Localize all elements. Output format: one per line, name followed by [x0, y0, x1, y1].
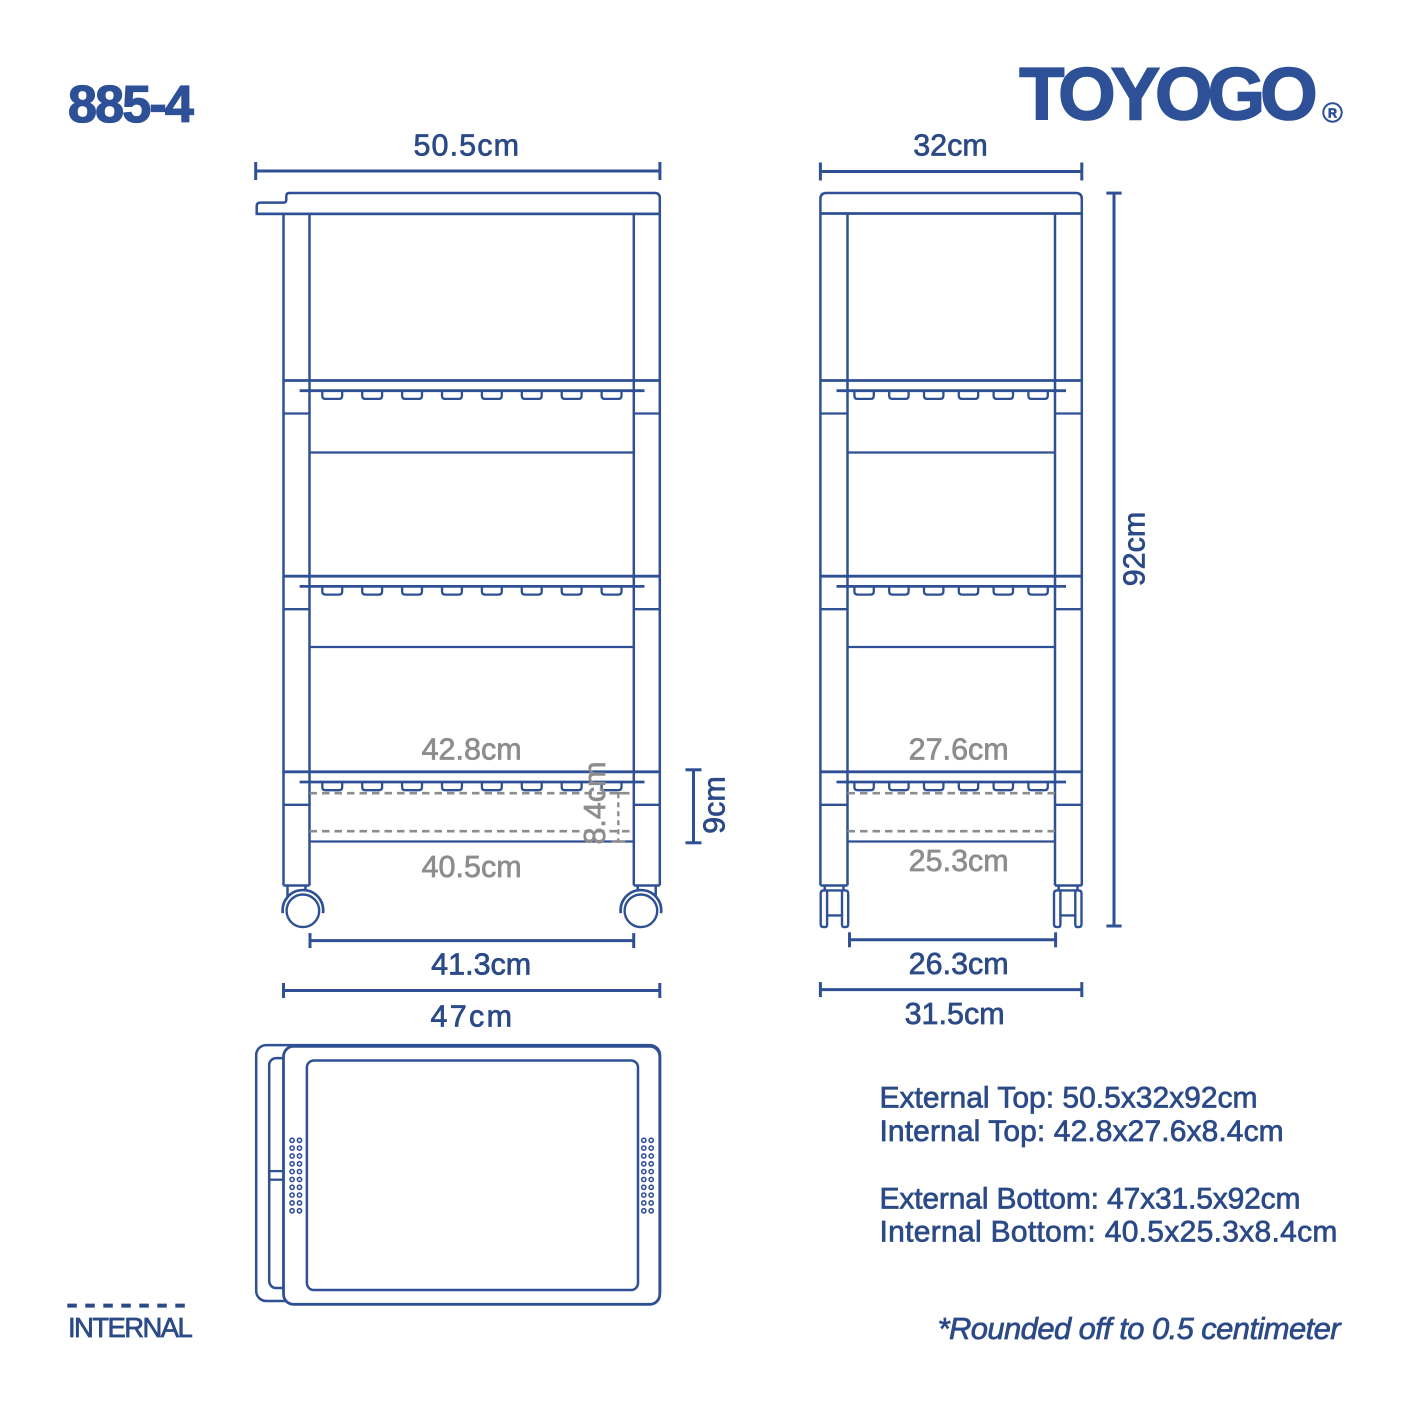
svg-text:External Top: 50.5x32x92cm: External Top: 50.5x32x92cm: [880, 1081, 1258, 1114]
svg-text:26.3cm: 26.3cm: [909, 947, 1009, 981]
svg-text:92cm: 92cm: [1118, 512, 1152, 587]
svg-text:TOYOGO: TOYOGO: [1019, 52, 1315, 135]
svg-text:31.5cm: 31.5cm: [905, 997, 1005, 1031]
svg-text:47cm: 47cm: [431, 1000, 515, 1034]
svg-text:Internal Top: 42.8x27.6x8.4cm: Internal Top: 42.8x27.6x8.4cm: [880, 1115, 1284, 1148]
svg-text:32cm: 32cm: [913, 129, 988, 163]
svg-text:8.4cm: 8.4cm: [578, 761, 612, 844]
svg-text:42.8cm: 42.8cm: [422, 733, 522, 767]
svg-text:50.5cm: 50.5cm: [413, 129, 520, 163]
svg-text:40.5cm: 40.5cm: [422, 850, 522, 884]
svg-text:25.3cm: 25.3cm: [909, 844, 1009, 878]
svg-text:External Bottom: 47x31.5x92cm: External Bottom: 47x31.5x92cm: [880, 1182, 1301, 1215]
svg-text:R: R: [1328, 107, 1337, 121]
svg-text:*Rounded off to 0.5 centimeter: *Rounded off to 0.5 centimeter: [938, 1311, 1343, 1346]
svg-text:Internal Bottom: 40.5x25.3x8.4: Internal Bottom: 40.5x25.3x8.4cm: [880, 1215, 1338, 1248]
svg-text:41.3cm: 41.3cm: [431, 948, 531, 982]
svg-text:INTERNAL: INTERNAL: [68, 1312, 193, 1343]
svg-text:9cm: 9cm: [698, 776, 732, 834]
svg-text:27.6cm: 27.6cm: [909, 733, 1009, 767]
svg-text:885-4: 885-4: [68, 76, 194, 134]
